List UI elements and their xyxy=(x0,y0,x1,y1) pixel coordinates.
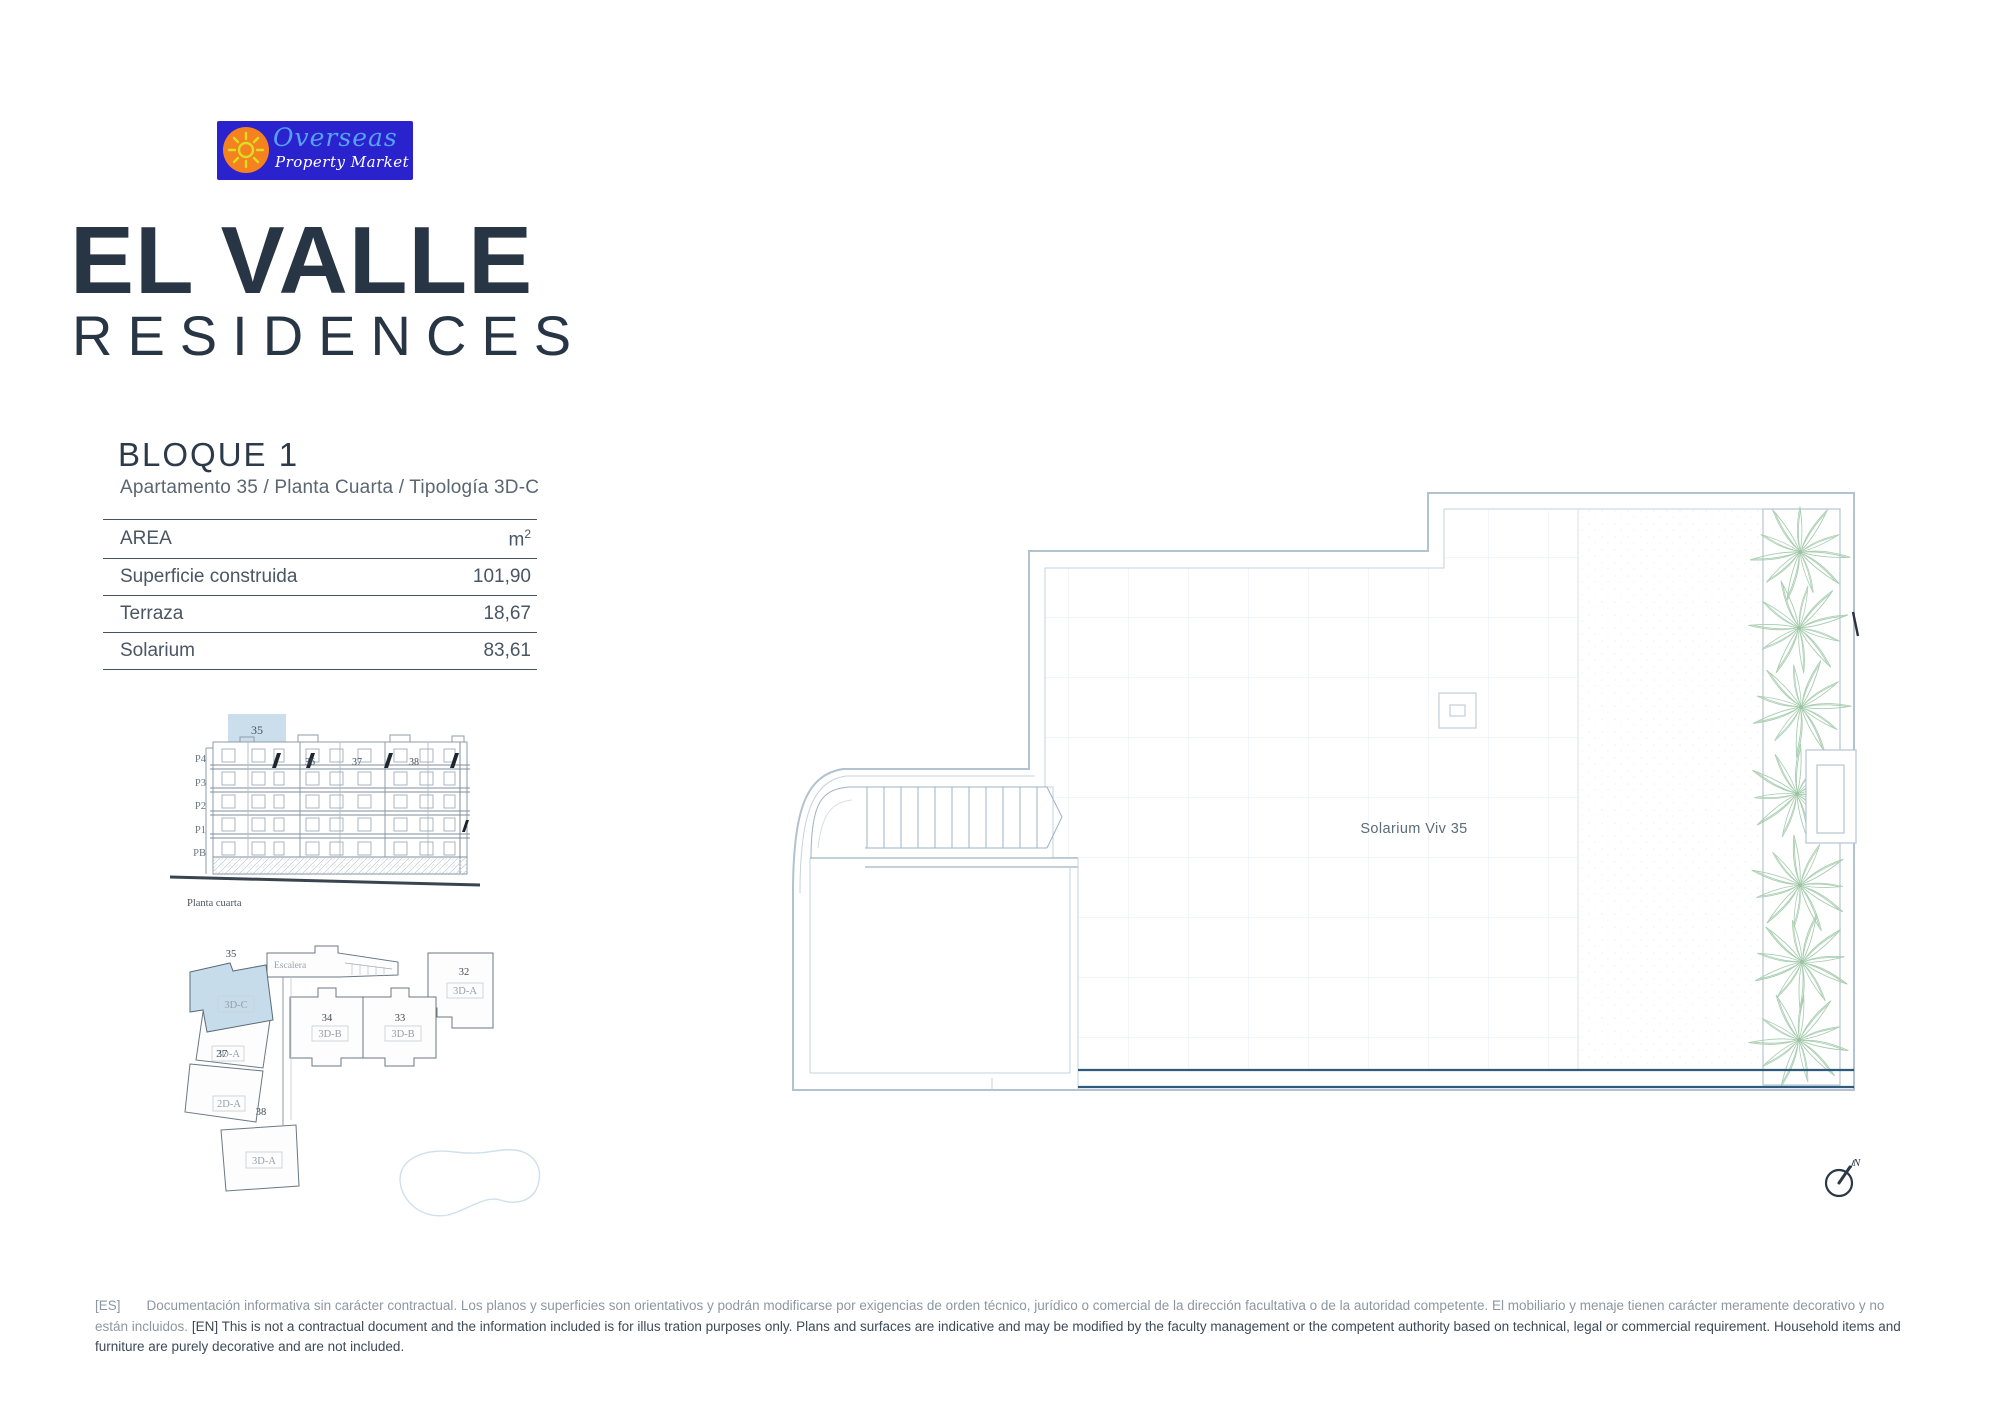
floor-label-p1: P1 xyxy=(195,825,206,836)
stair-label: Escalera xyxy=(274,961,307,971)
tiled-terrace-area xyxy=(1045,509,1578,1070)
floor-label-p4: P4 xyxy=(195,754,207,765)
unit-type: 3D-B xyxy=(391,1029,414,1040)
compass-north-label: N xyxy=(1852,1157,1861,1169)
elevation-caption: Planta cuarta xyxy=(187,898,242,909)
row-label: Superficie construida xyxy=(103,559,430,596)
unit-type: 2D-A xyxy=(217,1099,241,1110)
elevation-number-38: 38 xyxy=(409,757,419,768)
floor-label-p3: P3 xyxy=(195,778,206,789)
key-plan-number: 37 xyxy=(217,1049,228,1060)
unit-type: 3D-A xyxy=(252,1156,276,1167)
elevation-number-36: 36 xyxy=(305,757,315,768)
logo-line2: Property Market xyxy=(275,153,409,171)
solarium-open-area xyxy=(1578,509,1763,1070)
disclaimer-es-tag: [ES] xyxy=(95,1298,121,1313)
floor-label-pb: PB xyxy=(193,848,206,859)
skylight-square xyxy=(1439,693,1476,728)
table-row: Solarium 83,61 xyxy=(103,633,537,670)
table-row: Terraza 18,67 xyxy=(103,596,537,633)
compass-icon: N xyxy=(1810,1148,1880,1208)
planter-box xyxy=(1806,750,1856,843)
floor-label-p2: P2 xyxy=(195,801,206,812)
unit-type: 3D-A xyxy=(453,986,477,997)
unit-header: m2 xyxy=(430,520,537,559)
sun-icon xyxy=(223,127,269,173)
elevation-number-37: 37 xyxy=(352,757,362,768)
key-plan-number: 34 xyxy=(322,1013,333,1024)
row-label: Solarium xyxy=(103,633,430,670)
key-plan-diagram: 3D-C 3D-B 3D-B 3D-A 2D-A 2D-A 3D-A 35 34… xyxy=(150,935,570,1240)
key-plan-number: 32 xyxy=(459,967,470,978)
development-subtitle: RESIDENCES xyxy=(72,303,586,368)
key-plan-number: 33 xyxy=(395,1013,406,1024)
area-header: AREA xyxy=(103,520,430,559)
table-header-row: AREA m2 xyxy=(103,520,537,559)
logo-line1: Overseas xyxy=(273,123,398,152)
pool-outline xyxy=(400,1150,539,1216)
room-label: Solarium Viv 35 xyxy=(1360,821,1467,837)
elevation-unit-number: 35 xyxy=(251,723,263,737)
development-title: EL VALLE xyxy=(70,206,533,316)
stair-room xyxy=(810,858,1078,1090)
table-row: Superficie construida 101,90 xyxy=(103,559,537,596)
glass-balustrade xyxy=(1078,1070,1854,1087)
disclaimer-en-tag: [EN] xyxy=(192,1319,218,1334)
legal-disclaimer: [ES]Documentación informativa sin caráct… xyxy=(95,1296,1913,1358)
company-logo: Overseas Property Market xyxy=(217,121,413,180)
key-plan-number-35: 35 xyxy=(226,949,237,960)
brochure-page: Overseas Property Market EL VALLE RESIDE… xyxy=(0,0,2000,1414)
disclaimer-en-text: This is not a contractual document and t… xyxy=(95,1319,1901,1355)
apartment-subtitle: Apartamento 35 / Planta Cuarta / Tipolog… xyxy=(120,477,539,499)
solarium-floor-plan: Solarium Viv 35 xyxy=(780,480,1880,1210)
staircase xyxy=(811,787,1062,858)
area-table: AREA m2 Superficie construida 101,90 Ter… xyxy=(103,519,537,670)
block-heading: BLOQUE 1 xyxy=(118,436,299,474)
key-plan-number: 38 xyxy=(256,1107,267,1118)
row-value: 101,90 xyxy=(430,559,537,596)
unit-type: 3D-B xyxy=(318,1029,341,1040)
row-label: Terraza xyxy=(103,596,430,633)
row-value: 83,61 xyxy=(430,633,537,670)
unit-type-3dc: 3D-C xyxy=(224,1000,247,1011)
building-elevation-drawing: 35 xyxy=(150,700,510,915)
row-value: 18,67 xyxy=(430,596,537,633)
